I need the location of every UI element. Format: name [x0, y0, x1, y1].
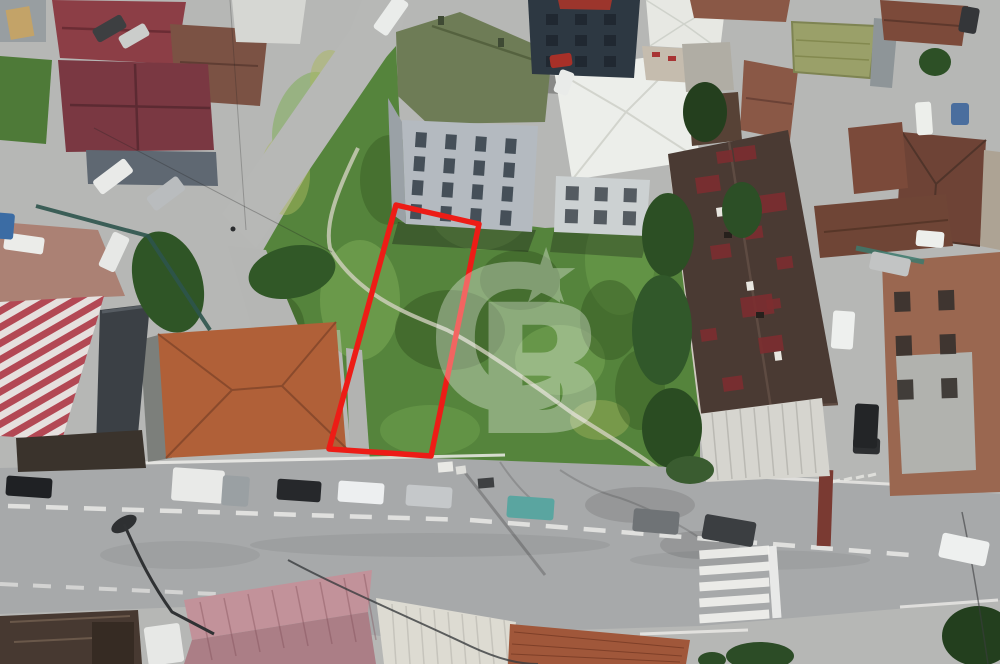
vehicle-white-van-right-street — [915, 230, 944, 248]
brown-house-right-street — [848, 122, 908, 194]
white-apartment-windows — [566, 186, 579, 200]
tree-row-right — [642, 193, 694, 277]
brick-wall — [817, 470, 834, 546]
roof-red-patch — [695, 175, 721, 194]
vehicle-blue-car-edge — [0, 212, 15, 240]
green-apartment-windows — [443, 158, 455, 174]
roof-red-patch — [700, 328, 718, 342]
brick-building-openings — [941, 378, 958, 399]
green-apartment-windows — [505, 138, 517, 154]
navy-building-windows — [604, 56, 616, 67]
green-apartment-windows — [500, 210, 512, 226]
vehicle-black-car-parked — [5, 475, 52, 498]
navy-building-windows — [575, 35, 587, 46]
vehicle-gray-car-road — [632, 508, 680, 535]
roof-red-patch — [716, 150, 734, 164]
navy-building-windows — [604, 35, 616, 46]
green-apartment-windows — [415, 132, 427, 148]
green-apartment-windows — [501, 186, 513, 202]
center-lane-dashes — [350, 514, 372, 519]
chimney — [774, 351, 782, 361]
navy-building-windows — [604, 14, 616, 25]
chimney — [746, 281, 754, 291]
olive-flat-roof-building — [792, 22, 876, 78]
tree — [722, 182, 762, 238]
navy-building-windows — [575, 56, 587, 67]
chimney — [498, 38, 504, 47]
navy-building-red-roof-edge — [558, 0, 612, 10]
vehicle-white-van-top-right — [915, 101, 933, 135]
tire-smudge — [250, 533, 610, 557]
tree-row-right — [642, 388, 702, 468]
vehicle-white-car-parked — [337, 480, 384, 504]
balcony-flowers — [668, 56, 676, 61]
brick-building-openings — [894, 291, 911, 312]
green-apartment-windows — [475, 136, 487, 152]
vehicle-dark-car-parked — [276, 478, 321, 502]
tree-row-right — [632, 275, 692, 385]
green-apartment-windows — [412, 180, 424, 196]
vehicle-white-box-truck — [171, 467, 225, 504]
watermark-star-icon: ★ — [512, 231, 580, 320]
utility-pole — [231, 227, 236, 232]
left-lower-dashes — [66, 585, 84, 590]
dark-dumpster — [478, 477, 495, 488]
center-lane-dashes — [274, 512, 296, 517]
green-apartment-windows — [442, 182, 454, 198]
white-box-roadside — [455, 465, 466, 474]
left-lower-dashes — [132, 588, 150, 593]
vehicle-white-van-bottom — [143, 623, 184, 664]
white-apartment-windows — [565, 209, 578, 223]
vehicle-white-car-right-street — [831, 310, 856, 349]
brick-building-openings — [896, 335, 913, 356]
grass-patch-top-left — [0, 56, 52, 144]
center-lane-dashes — [426, 516, 448, 521]
brick-building-openings — [940, 334, 957, 355]
green-apartment-windows — [503, 162, 515, 178]
center-lane-dashes — [122, 507, 144, 512]
green-apartment-windows — [413, 156, 425, 172]
roof-red-patch — [766, 298, 781, 310]
vehicle-blue-tarp — [951, 103, 969, 125]
center-lane-dashes — [84, 506, 106, 511]
white-building-top-left — [232, 0, 306, 44]
center-lane-dashes — [236, 511, 258, 516]
chimney — [438, 16, 444, 25]
tire-smudge — [100, 541, 260, 569]
brick-building-openings — [897, 379, 914, 400]
left-lower-dashes — [198, 591, 216, 596]
concrete-forecourt — [896, 352, 976, 474]
tree — [683, 82, 727, 142]
brick-building-openings — [938, 290, 955, 311]
white-box-roadside — [438, 461, 454, 472]
roof-red-patch — [758, 335, 784, 354]
green-apartment-windows — [471, 184, 483, 200]
left-lower-dashes — [99, 587, 117, 592]
vehicle-silver-car-parked — [405, 484, 452, 508]
navy-building-windows — [546, 14, 558, 25]
yellow-structure — [6, 6, 35, 40]
aerial-photo-canvas: C B ★ — [0, 0, 1000, 664]
roof-red-patch — [776, 256, 794, 270]
navy-building-windows — [575, 14, 587, 25]
center-lane-dashes — [198, 510, 220, 515]
center-lane-dashes — [388, 515, 410, 520]
green-apartment-windows — [473, 160, 485, 176]
white-apartment-windows — [594, 210, 607, 224]
green-apartment-windows — [445, 134, 457, 150]
brown-annex — [92, 622, 134, 664]
vehicle-teal-car-parked — [506, 495, 554, 520]
left-lower-dashes — [33, 584, 51, 589]
vehicle-truck-cab — [221, 475, 250, 507]
shrubs-roadside — [666, 456, 714, 484]
center-lane-dashes — [160, 508, 182, 513]
roof-vent — [756, 312, 764, 318]
center-lane-dashes — [312, 513, 334, 518]
white-apartment-windows — [623, 188, 636, 202]
balcony-flowers — [652, 52, 660, 57]
navy-building-windows — [546, 35, 558, 46]
center-lane-dashes — [8, 504, 30, 509]
aerial-listing-photo: C B ★ — [0, 0, 1000, 664]
tree — [919, 48, 951, 76]
left-lower-dashes — [0, 582, 18, 587]
left-lower-dashes — [165, 590, 183, 595]
white-apartment-windows — [623, 211, 636, 225]
center-lane-dashes — [46, 505, 68, 510]
white-apartment-windows — [594, 187, 607, 201]
roof-red-patch — [722, 375, 744, 392]
vehicle-black-car-right-street — [853, 403, 879, 448]
roof-red-patch — [710, 243, 732, 260]
